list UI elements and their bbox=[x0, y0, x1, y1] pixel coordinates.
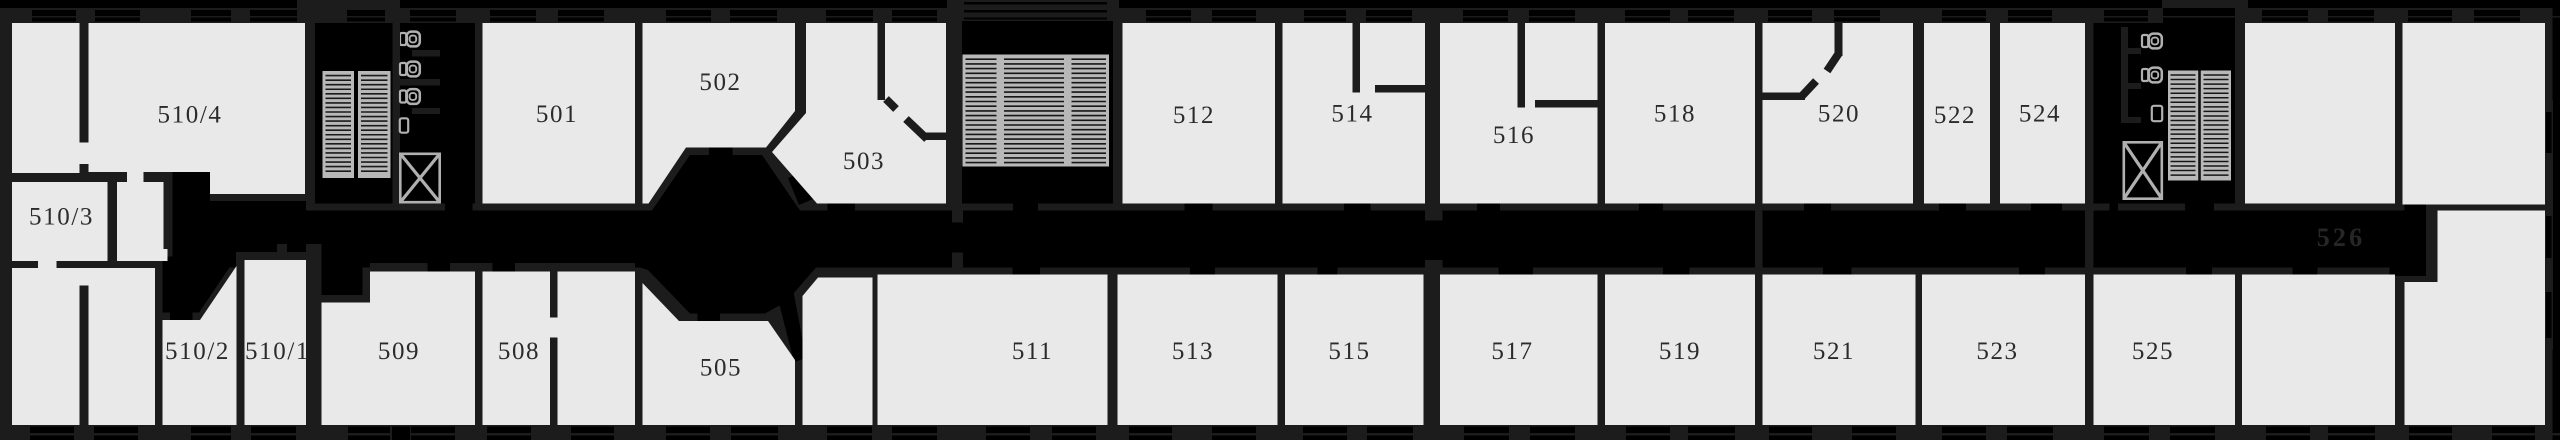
svg-text:509: 509 bbox=[378, 338, 420, 365]
svg-text:520: 520 bbox=[1818, 101, 1860, 128]
svg-text:513: 513 bbox=[1172, 338, 1214, 365]
svg-text:510/3: 510/3 bbox=[29, 204, 94, 231]
svg-text:525: 525 bbox=[2132, 338, 2174, 365]
svg-text:522: 522 bbox=[1934, 102, 1976, 129]
svg-text:518: 518 bbox=[1654, 101, 1696, 128]
svg-text:526: 526 bbox=[2317, 223, 2366, 252]
svg-text:521: 521 bbox=[1813, 338, 1855, 365]
svg-text:524: 524 bbox=[2019, 101, 2061, 128]
svg-text:508: 508 bbox=[498, 338, 540, 365]
svg-text:514: 514 bbox=[1331, 101, 1373, 128]
svg-text:516: 516 bbox=[1493, 122, 1535, 149]
svg-text:517: 517 bbox=[1491, 338, 1533, 365]
svg-text:512: 512 bbox=[1173, 102, 1215, 129]
svg-text:510/4: 510/4 bbox=[158, 102, 223, 129]
svg-text:511: 511 bbox=[1012, 338, 1053, 365]
svg-text:510/2: 510/2 bbox=[165, 338, 230, 365]
svg-text:503: 503 bbox=[843, 148, 885, 175]
svg-text:502: 502 bbox=[699, 69, 741, 96]
svg-text:505: 505 bbox=[700, 355, 742, 382]
svg-text:523: 523 bbox=[1976, 338, 2018, 365]
svg-text:501: 501 bbox=[536, 101, 578, 128]
svg-text:519: 519 bbox=[1659, 338, 1701, 365]
svg-text:515: 515 bbox=[1328, 338, 1370, 365]
svg-text:510/1: 510/1 bbox=[245, 338, 310, 365]
